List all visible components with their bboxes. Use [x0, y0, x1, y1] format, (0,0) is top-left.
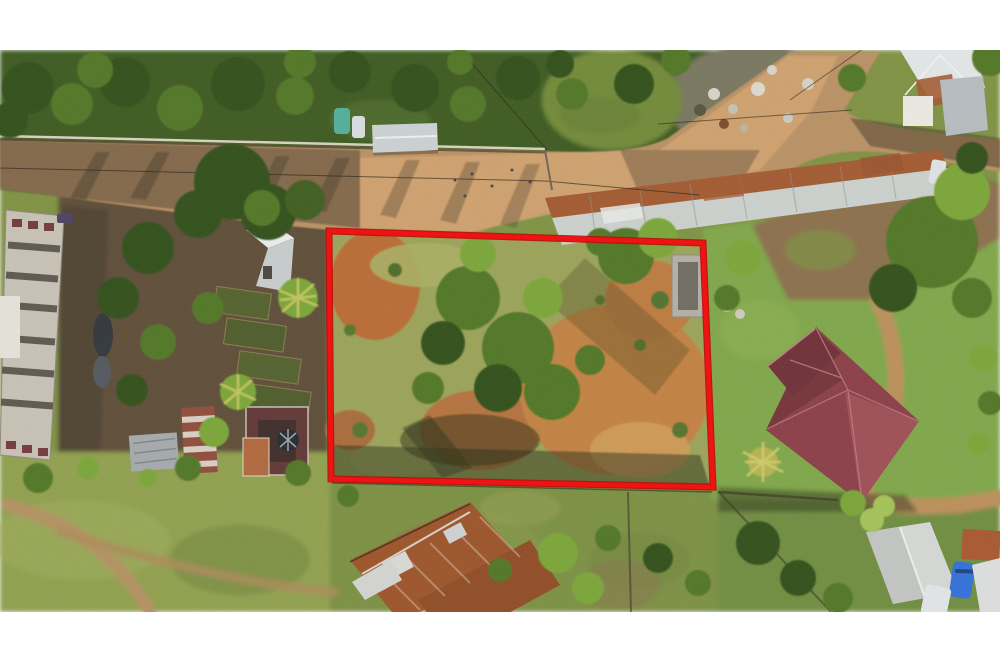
photo-grain — [0, 50, 1000, 612]
noise-overlay — [0, 50, 1000, 612]
letterbox-top — [0, 0, 1000, 50]
aerial-photo — [0, 0, 1000, 667]
letterbox-bottom — [0, 612, 1000, 667]
screenshot-root — [0, 0, 1000, 667]
